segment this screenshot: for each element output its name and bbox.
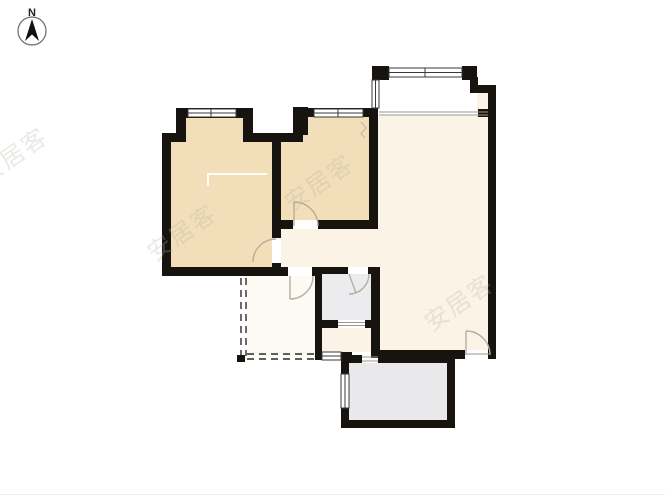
wall-segment xyxy=(488,93,496,359)
floor-plan-drawing: N 安居客 安居客 安居客 安居客 xyxy=(0,0,665,501)
room-floors xyxy=(171,80,488,420)
wall-segment xyxy=(315,267,322,356)
window-balcony-top xyxy=(389,68,462,77)
window-balcony-bottom xyxy=(341,374,349,408)
bedroom-left-floor xyxy=(171,140,272,267)
wall-segment xyxy=(318,220,378,229)
wall-segment xyxy=(447,355,455,428)
kitchen-floor xyxy=(246,276,315,356)
wall-segment xyxy=(365,320,380,328)
wall-segment xyxy=(378,355,455,363)
page-edge-line xyxy=(0,494,665,495)
bedroom-left-floor-bay xyxy=(186,117,243,142)
wall-segment xyxy=(341,420,455,428)
window-balcony-left-strip xyxy=(372,80,379,108)
wall-segment xyxy=(272,220,293,229)
balcony-bottom-floor xyxy=(349,363,447,420)
window-bedroom-left xyxy=(188,109,236,117)
wall-segment xyxy=(315,352,322,360)
north-compass: N xyxy=(18,7,46,45)
wall-segment xyxy=(371,267,380,327)
floor-plan-page: N 安居客 安居客 安居客 安居客 xyxy=(0,0,665,501)
wall-segment xyxy=(462,66,477,80)
wall-segment xyxy=(272,263,281,276)
bathroom-opening-track xyxy=(338,323,365,326)
wall-segment xyxy=(315,320,338,328)
watermark-text: 安居客 xyxy=(0,123,53,190)
wall-segment xyxy=(322,267,348,274)
north-arrow-icon xyxy=(25,19,39,41)
utility-floor xyxy=(322,328,371,352)
wall-segment xyxy=(372,66,389,80)
balcony-top-floor xyxy=(379,80,477,111)
wall-segment xyxy=(369,108,378,228)
window-utility xyxy=(322,352,341,360)
wall-segment xyxy=(176,108,186,136)
wall-segment xyxy=(162,267,288,276)
bathroom-floor xyxy=(322,274,371,320)
dash-anchor xyxy=(237,355,245,362)
balcony-sill-track xyxy=(379,112,488,115)
window-bedroom-middle xyxy=(314,109,363,117)
compass-north-label: N xyxy=(28,7,36,19)
hallway-floor xyxy=(281,229,380,267)
wall-segment xyxy=(478,109,490,117)
